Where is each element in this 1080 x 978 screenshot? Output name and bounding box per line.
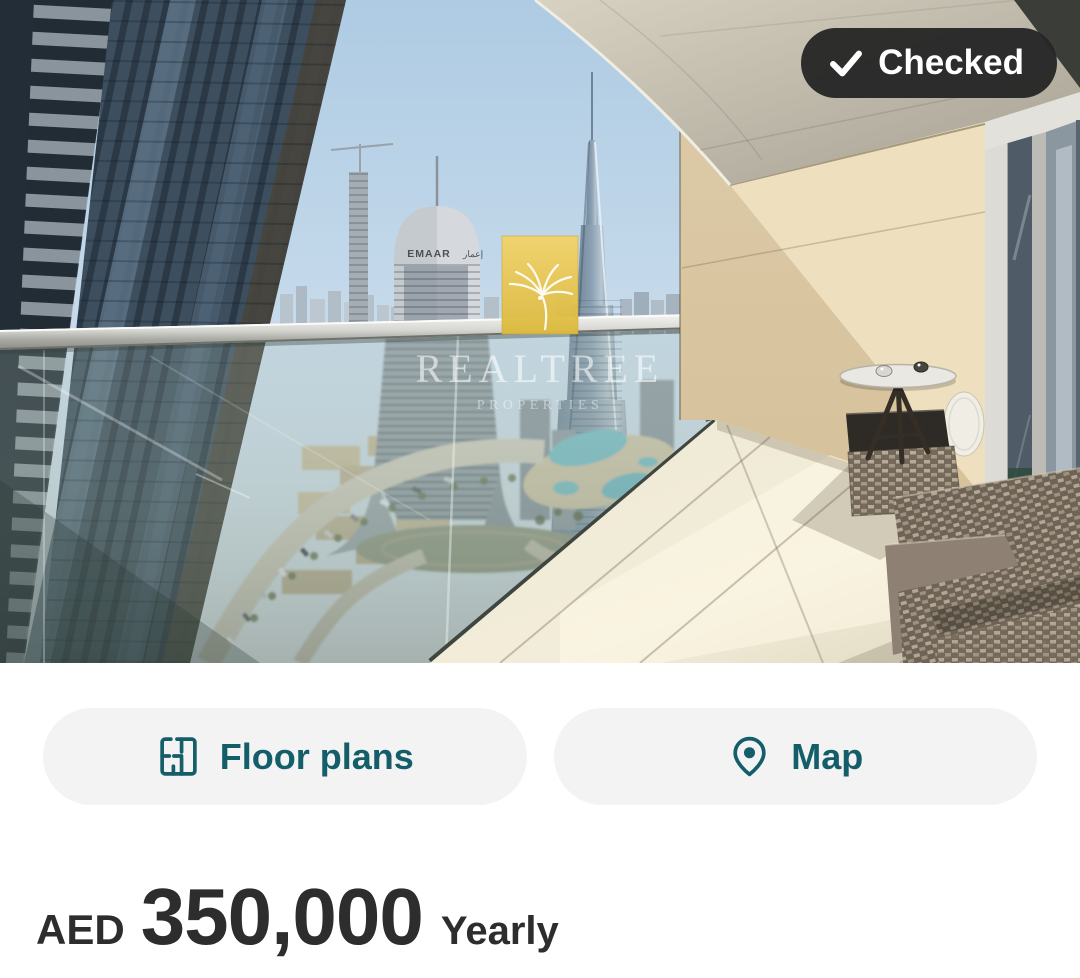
price-period: Yearly (441, 910, 559, 952)
watermark-title: REALTREE (416, 346, 665, 391)
emaar-sign-arabic: إعمار (462, 249, 483, 260)
listing-screen: EMAAR إعمار (0, 0, 1080, 978)
floorplan-icon (156, 734, 201, 779)
balcony-view-illustration: EMAAR إعمار (0, 0, 1080, 663)
emaar-sign: EMAAR (407, 248, 451, 260)
checked-badge: Checked (801, 28, 1057, 98)
checked-badge-label: Checked (878, 43, 1024, 83)
map-pin-icon (727, 734, 772, 779)
property-photo[interactable]: EMAAR إعمار (0, 0, 1080, 663)
round-table (840, 365, 956, 388)
price-currency: AED (36, 908, 125, 952)
map-label: Map (791, 736, 863, 778)
watermark-subtitle: PROPERTIES (477, 398, 604, 413)
check-icon (830, 50, 862, 77)
action-buttons-row: Floor plans Map (0, 663, 1080, 805)
floor-plans-button[interactable]: Floor plans (43, 708, 527, 805)
price-row: AED 350,000 Yearly (0, 805, 1080, 959)
price-amount: 350,000 (141, 875, 423, 959)
floor-plans-label: Floor plans (220, 736, 414, 778)
map-button[interactable]: Map (554, 708, 1038, 805)
